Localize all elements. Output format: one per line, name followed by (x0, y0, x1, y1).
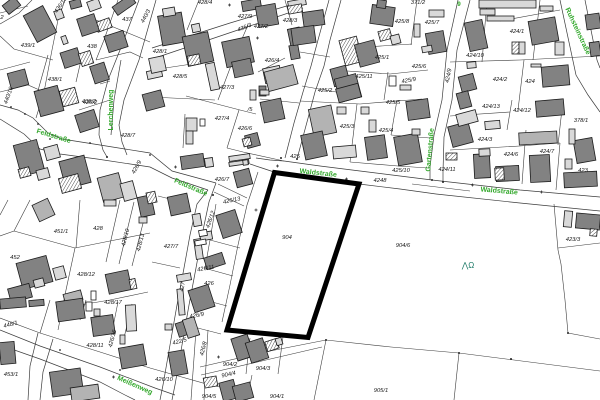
svg-text:420/2: 420/2 (83, 100, 98, 106)
svg-text:904/2: 904/2 (223, 362, 238, 368)
svg-text:425/5: 425/5 (386, 100, 401, 106)
svg-text:427/7: 427/7 (164, 244, 179, 250)
svg-text:Lerchenweg: Lerchenweg (108, 90, 115, 131)
svg-text:371/2: 371/2 (411, 0, 426, 6)
svg-text:424/13: 424/13 (482, 104, 501, 110)
svg-text:428/7: 428/7 (121, 133, 136, 139)
svg-text:425/3: 425/3 (340, 124, 355, 130)
svg-text:437: 437 (122, 17, 132, 23)
svg-text:428/4: 428/4 (198, 0, 213, 6)
svg-text:4248: 4248 (374, 178, 388, 184)
svg-text:451/1: 451/1 (54, 229, 69, 235)
svg-text:428/3: 428/3 (283, 18, 298, 24)
svg-text:425/6: 425/6 (412, 64, 427, 70)
svg-text:905/1: 905/1 (374, 388, 389, 394)
svg-text:425: 425 (290, 154, 300, 160)
svg-text:426/10: 426/10 (155, 377, 174, 383)
svg-text:904: 904 (282, 235, 292, 241)
svg-text:427/4: 427/4 (215, 116, 230, 122)
svg-text:426/4: 426/4 (265, 58, 280, 64)
svg-text:428: 428 (93, 226, 103, 232)
svg-text:428/1: 428/1 (153, 49, 168, 55)
svg-text:424/3: 424/3 (478, 137, 493, 143)
svg-text:425/11: 425/11 (355, 74, 372, 80)
svg-text:423: 423 (578, 168, 588, 174)
svg-text:453/1: 453/1 (4, 372, 19, 378)
svg-text:426: 426 (204, 281, 214, 287)
svg-text:904/6: 904/6 (396, 243, 411, 249)
svg-text:425/10: 425/10 (392, 168, 411, 174)
svg-text:439/1: 439/1 (21, 43, 36, 49)
svg-text:424/10: 424/10 (466, 53, 485, 59)
svg-text:428/11: 428/11 (86, 343, 103, 349)
svg-text:423/3: 423/3 (566, 237, 581, 243)
svg-text:904/1: 904/1 (270, 394, 285, 400)
svg-text:427/9: 427/9 (238, 14, 253, 20)
svg-text:425/2: 425/2 (318, 88, 333, 94)
svg-text:438: 438 (87, 44, 97, 50)
svg-text:425/8: 425/8 (395, 19, 410, 25)
svg-text:452: 452 (10, 255, 20, 261)
svg-text:426/6: 426/6 (238, 126, 253, 132)
svg-text:428/17: 428/17 (104, 300, 123, 306)
svg-text:/5: /5 (247, 107, 254, 113)
svg-text:425/7: 425/7 (425, 20, 440, 26)
svg-text:⋀Ω: ⋀Ω (461, 261, 475, 270)
svg-text:424/6: 424/6 (504, 152, 519, 158)
svg-text:428/12: 428/12 (77, 272, 96, 278)
svg-text:427/2: 427/2 (254, 24, 269, 30)
svg-text:426/7: 426/7 (215, 177, 230, 183)
svg-text:424/11: 424/11 (438, 167, 455, 173)
svg-text:904/5: 904/5 (202, 394, 217, 400)
svg-text:425/1: 425/1 (375, 55, 390, 61)
svg-text:438/1: 438/1 (48, 77, 63, 83)
svg-text:425/4: 425/4 (379, 128, 394, 134)
svg-text:428/5: 428/5 (173, 74, 188, 80)
svg-text:424/12: 424/12 (513, 108, 532, 114)
svg-text:378/1: 378/1 (574, 118, 589, 124)
svg-text:424/2: 424/2 (493, 77, 508, 83)
svg-text:424/1: 424/1 (510, 29, 525, 35)
svg-text:427/3: 427/3 (220, 85, 235, 91)
svg-text:424: 424 (525, 79, 535, 85)
svg-text:424/7: 424/7 (540, 149, 555, 155)
svg-text:904/3: 904/3 (256, 366, 271, 372)
